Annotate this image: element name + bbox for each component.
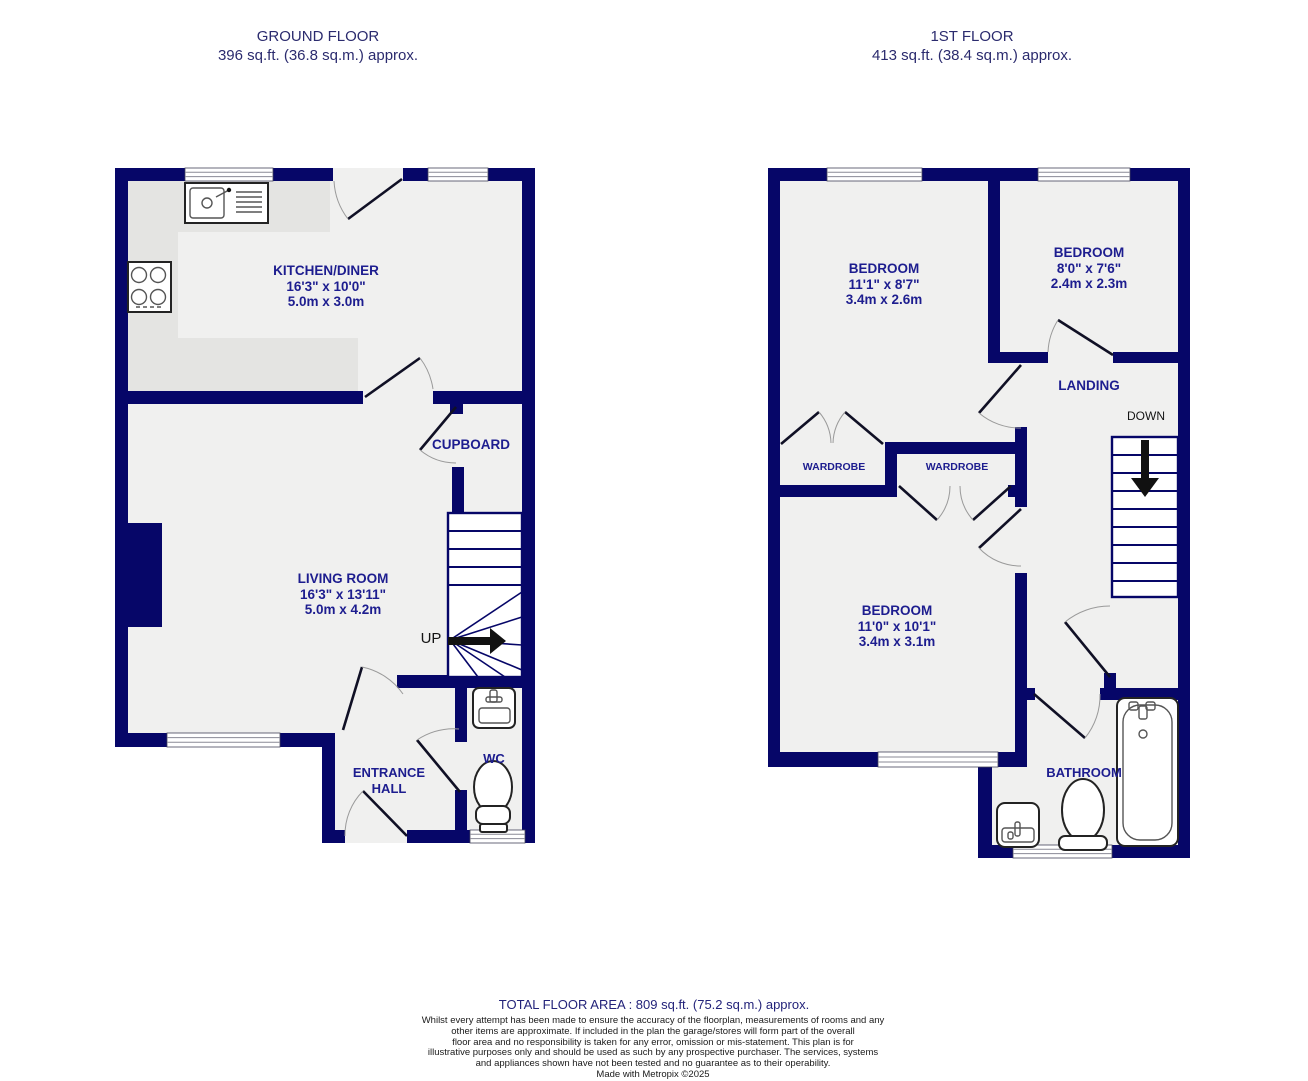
- room-label-wardrobe2: WARDROBE: [926, 461, 988, 473]
- metropix-credit: Made with Metropix ©2025: [422, 1070, 885, 1081]
- window-icon: [827, 168, 922, 181]
- toilet-icon: [474, 761, 512, 832]
- room-label-bathroom: BATHROOM: [1046, 765, 1122, 781]
- first-floor-title-line: 1ST FLOOR: [872, 28, 1072, 47]
- stairs-down-label: DOWN: [1127, 409, 1165, 425]
- window-icon: [1038, 168, 1130, 181]
- room-label-entrance-hall: ENTRANCE HALL: [353, 765, 425, 796]
- staircase-up: [448, 513, 522, 677]
- bathtub-icon: [1117, 698, 1178, 846]
- total-floor-area: TOTAL FLOOR AREA : 809 sq.ft. (75.2 sq.m…: [499, 997, 809, 1012]
- room-label-kitchen: KITCHEN/DINER 16'3" x 10'0" 5.0m x 3.0m: [273, 263, 379, 310]
- basin-icon: [473, 688, 515, 728]
- ground-floor-area: 396 sq.ft. (36.8 sq.m.) approx.: [218, 47, 418, 66]
- room-label-bedroom2: BEDROOM 8'0" x 7'6" 2.4m x 2.3m: [1051, 245, 1128, 292]
- window-icon: [428, 168, 488, 181]
- room-label-landing: LANDING: [1058, 378, 1120, 394]
- chimney-breast: [128, 523, 162, 627]
- window-icon: [185, 168, 273, 181]
- room-label-wc: WC: [483, 751, 505, 767]
- window-icon: [878, 752, 998, 767]
- first-floor-title: 1ST FLOOR 413 sq.ft. (38.4 sq.m.) approx…: [872, 28, 1072, 65]
- stairs-up-label: UP: [421, 631, 442, 647]
- room-label-cupboard: CUPBOARD: [432, 437, 510, 453]
- window-icon: [167, 733, 280, 747]
- room-label-bedroom1: BEDROOM 11'1" x 8'7" 3.4m x 2.6m: [846, 261, 923, 308]
- basin-icon: [997, 803, 1039, 847]
- room-label-living: LIVING ROOM 16'3" x 13'11" 5.0m x 4.2m: [298, 571, 389, 618]
- disclaimer: Whilst every attempt has been made to en…: [422, 1016, 885, 1081]
- room-label-wardrobe1: WARDROBE: [803, 461, 865, 473]
- room-label-bedroom3: BEDROOM 11'0" x 10'1" 3.4m x 3.1m: [858, 603, 937, 650]
- hob-icon: [128, 262, 171, 312]
- ground-floor-title: GROUND FLOOR 396 sq.ft. (36.8 sq.m.) app…: [218, 28, 418, 65]
- staircase-down: [1112, 437, 1178, 597]
- sink-icon: [185, 183, 268, 223]
- ground-floor-title-line: GROUND FLOOR: [218, 28, 418, 47]
- toilet-icon: [1059, 779, 1107, 850]
- floorplan-canvas: [0, 0, 1308, 1080]
- first-floor-area: 413 sq.ft. (38.4 sq.m.) approx.: [872, 47, 1072, 66]
